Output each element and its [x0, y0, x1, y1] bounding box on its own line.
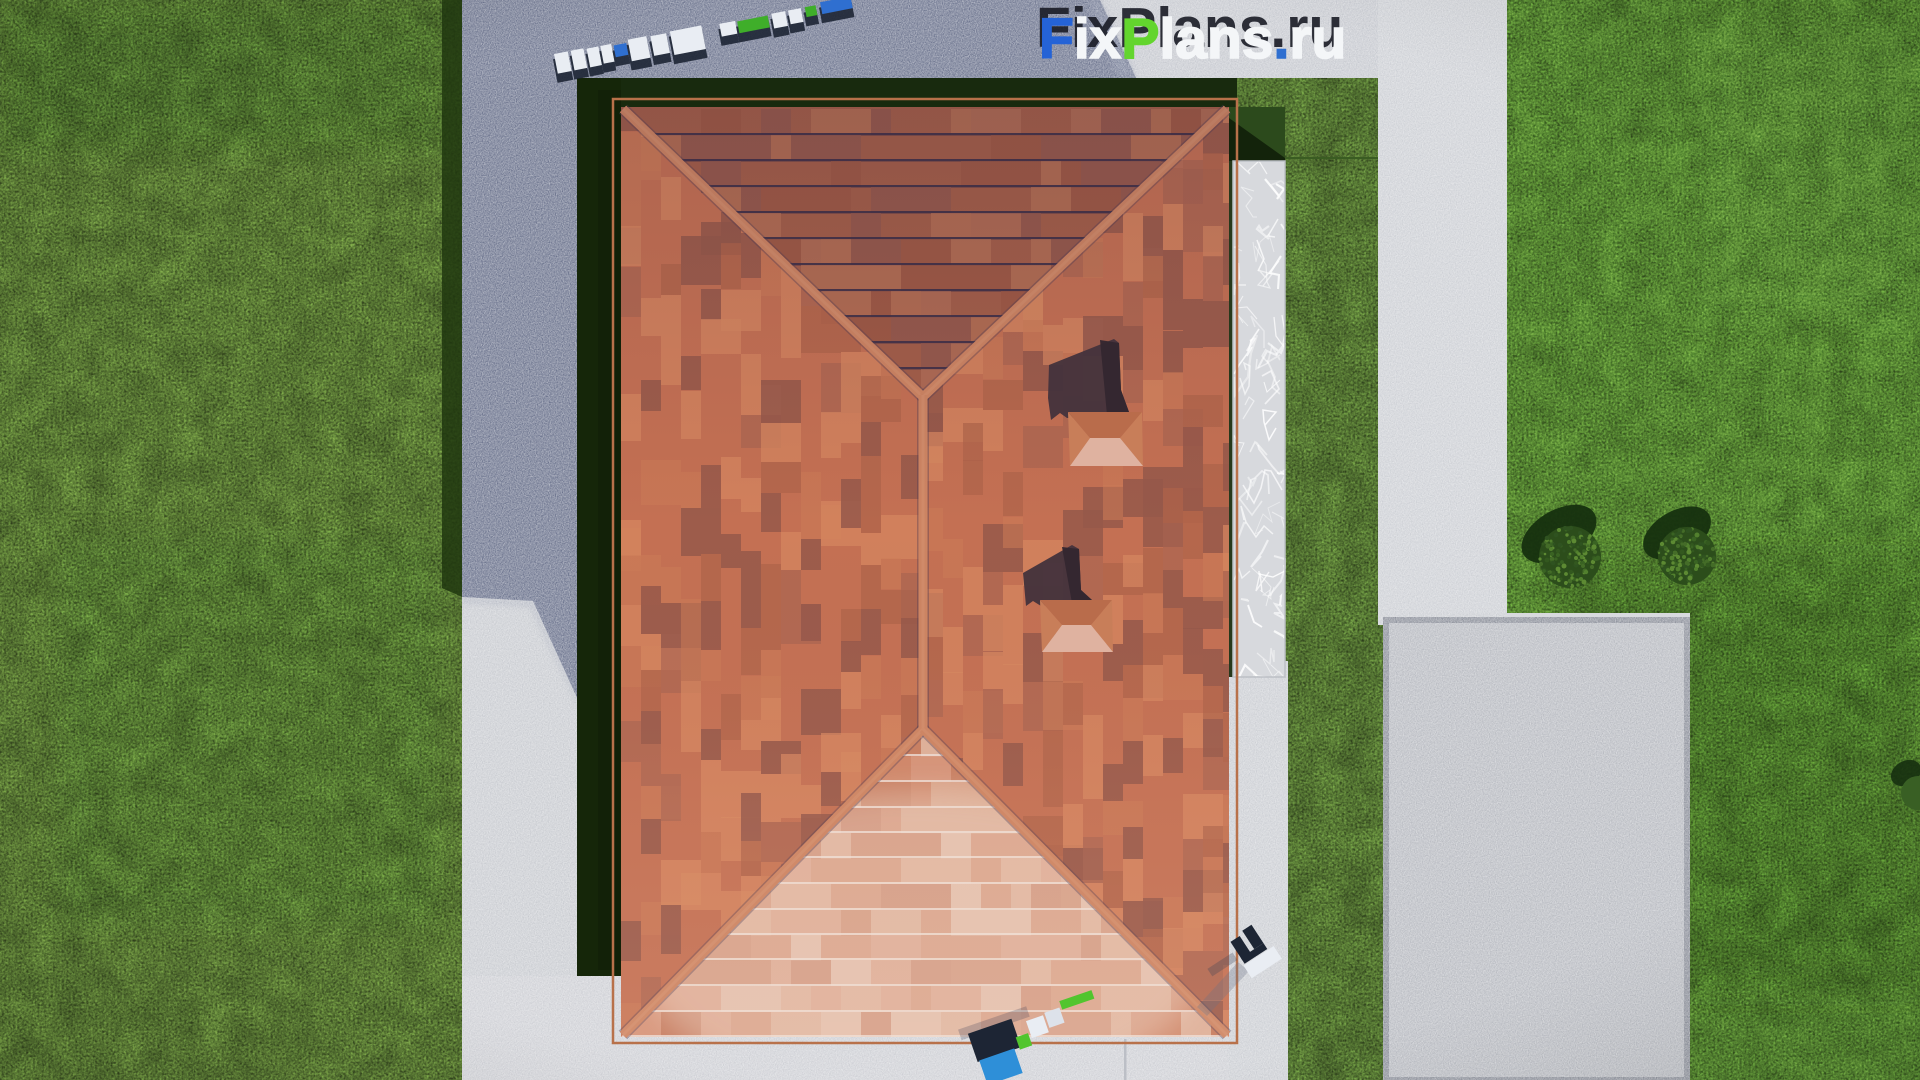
svg-text:FixPlans.ru: FixPlans.ru	[1039, 7, 1346, 71]
